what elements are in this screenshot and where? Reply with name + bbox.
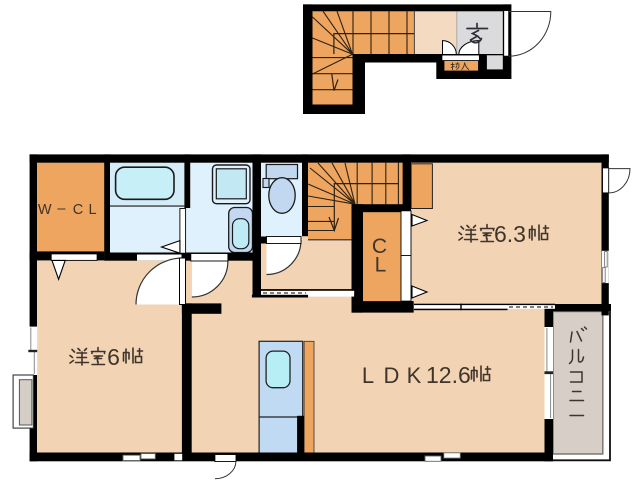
- svg-text:6.3: 6.3: [494, 221, 526, 247]
- svg-text:6: 6: [107, 344, 120, 370]
- svg-text:12.6: 12.6: [426, 362, 471, 388]
- svg-text:L: L: [375, 254, 387, 277]
- svg-text:W: W: [38, 202, 52, 218]
- svg-text:K: K: [407, 363, 422, 388]
- svg-text:D: D: [384, 363, 400, 388]
- svg-text:C: C: [73, 202, 83, 218]
- svg-text:L: L: [88, 202, 96, 218]
- svg-text:L: L: [362, 363, 374, 388]
- svg-text:–: –: [57, 201, 66, 217]
